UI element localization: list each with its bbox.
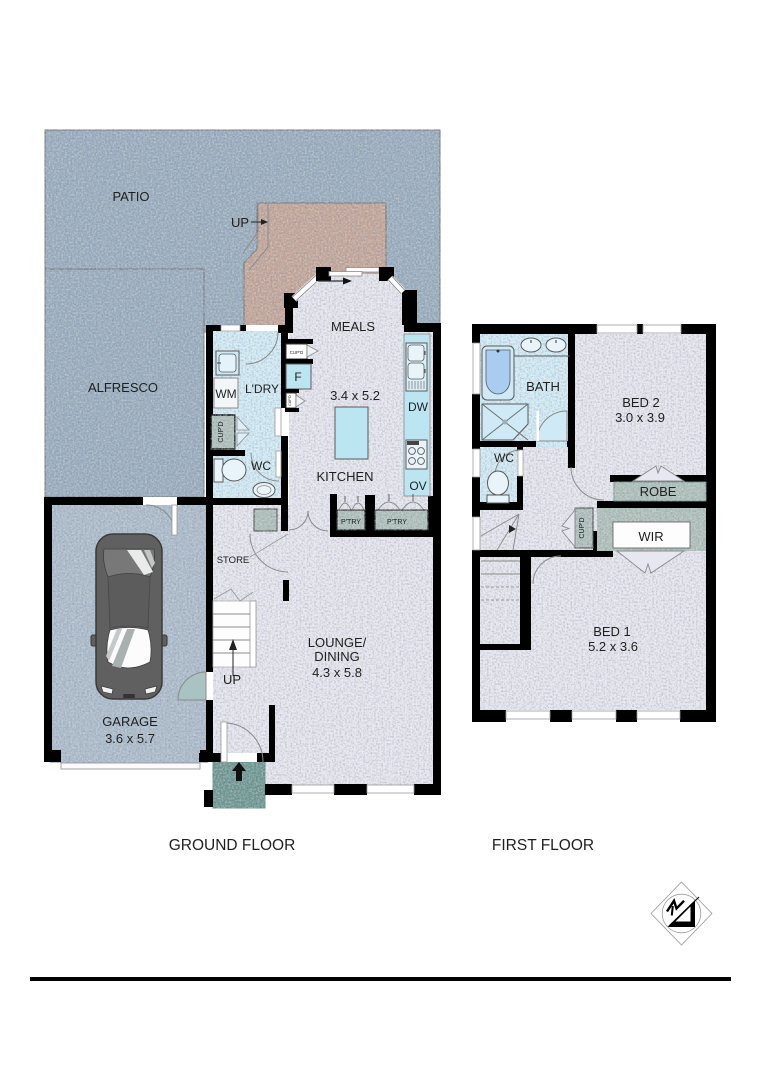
svg-text:DW: DW xyxy=(408,400,429,414)
svg-text:5.2 x 3.6: 5.2 x 3.6 xyxy=(588,639,638,654)
svg-text:BED 1: BED 1 xyxy=(593,624,631,639)
svg-text:CUP'D: CUP'D xyxy=(218,421,225,442)
svg-text:LOUNGE/: LOUNGE/ xyxy=(308,635,367,650)
svg-text:3.4 x 5.2: 3.4 x 5.2 xyxy=(330,388,380,403)
svg-text:GARAGE: GARAGE xyxy=(102,714,158,729)
svg-text:P'TRY: P'TRY xyxy=(341,519,361,526)
svg-text:CUP'D: CUP'D xyxy=(290,350,304,355)
svg-text:L'DRY: L'DRY xyxy=(245,382,279,396)
svg-text:BATH: BATH xyxy=(526,379,560,394)
svg-text:KITCHEN: KITCHEN xyxy=(316,469,373,484)
svg-text:WC: WC xyxy=(251,459,271,473)
svg-text:WM: WM xyxy=(215,387,236,401)
svg-text:WIR: WIR xyxy=(638,529,663,544)
svg-text:4.3 x 5.8: 4.3 x 5.8 xyxy=(312,665,362,680)
svg-text:P'TRY: P'TRY xyxy=(387,519,407,526)
svg-text:CUP'D: CUP'D xyxy=(579,517,586,538)
svg-text:MEALS: MEALS xyxy=(331,319,375,334)
svg-text:CUP'D: CUP'D xyxy=(288,395,292,406)
svg-text:3.6 x 5.7: 3.6 x 5.7 xyxy=(105,731,155,746)
svg-text:3.0 x 3.9: 3.0 x 3.9 xyxy=(615,410,665,425)
svg-text:GROUND FLOOR: GROUND FLOOR xyxy=(169,837,296,854)
svg-text:PATIO: PATIO xyxy=(112,189,149,204)
svg-text:WC: WC xyxy=(494,451,514,465)
svg-text:ROBE: ROBE xyxy=(640,484,677,499)
svg-text:BED 2: BED 2 xyxy=(622,395,660,410)
svg-text:OV: OV xyxy=(409,479,426,493)
svg-text:UP: UP xyxy=(231,215,249,230)
svg-text:ALFRESCO: ALFRESCO xyxy=(88,380,158,395)
svg-text:STORE: STORE xyxy=(217,555,250,566)
svg-text:F: F xyxy=(294,370,301,384)
svg-text:UP: UP xyxy=(223,672,241,687)
svg-text:DINING: DINING xyxy=(314,649,360,664)
svg-text:FIRST FLOOR: FIRST FLOOR xyxy=(492,837,594,854)
